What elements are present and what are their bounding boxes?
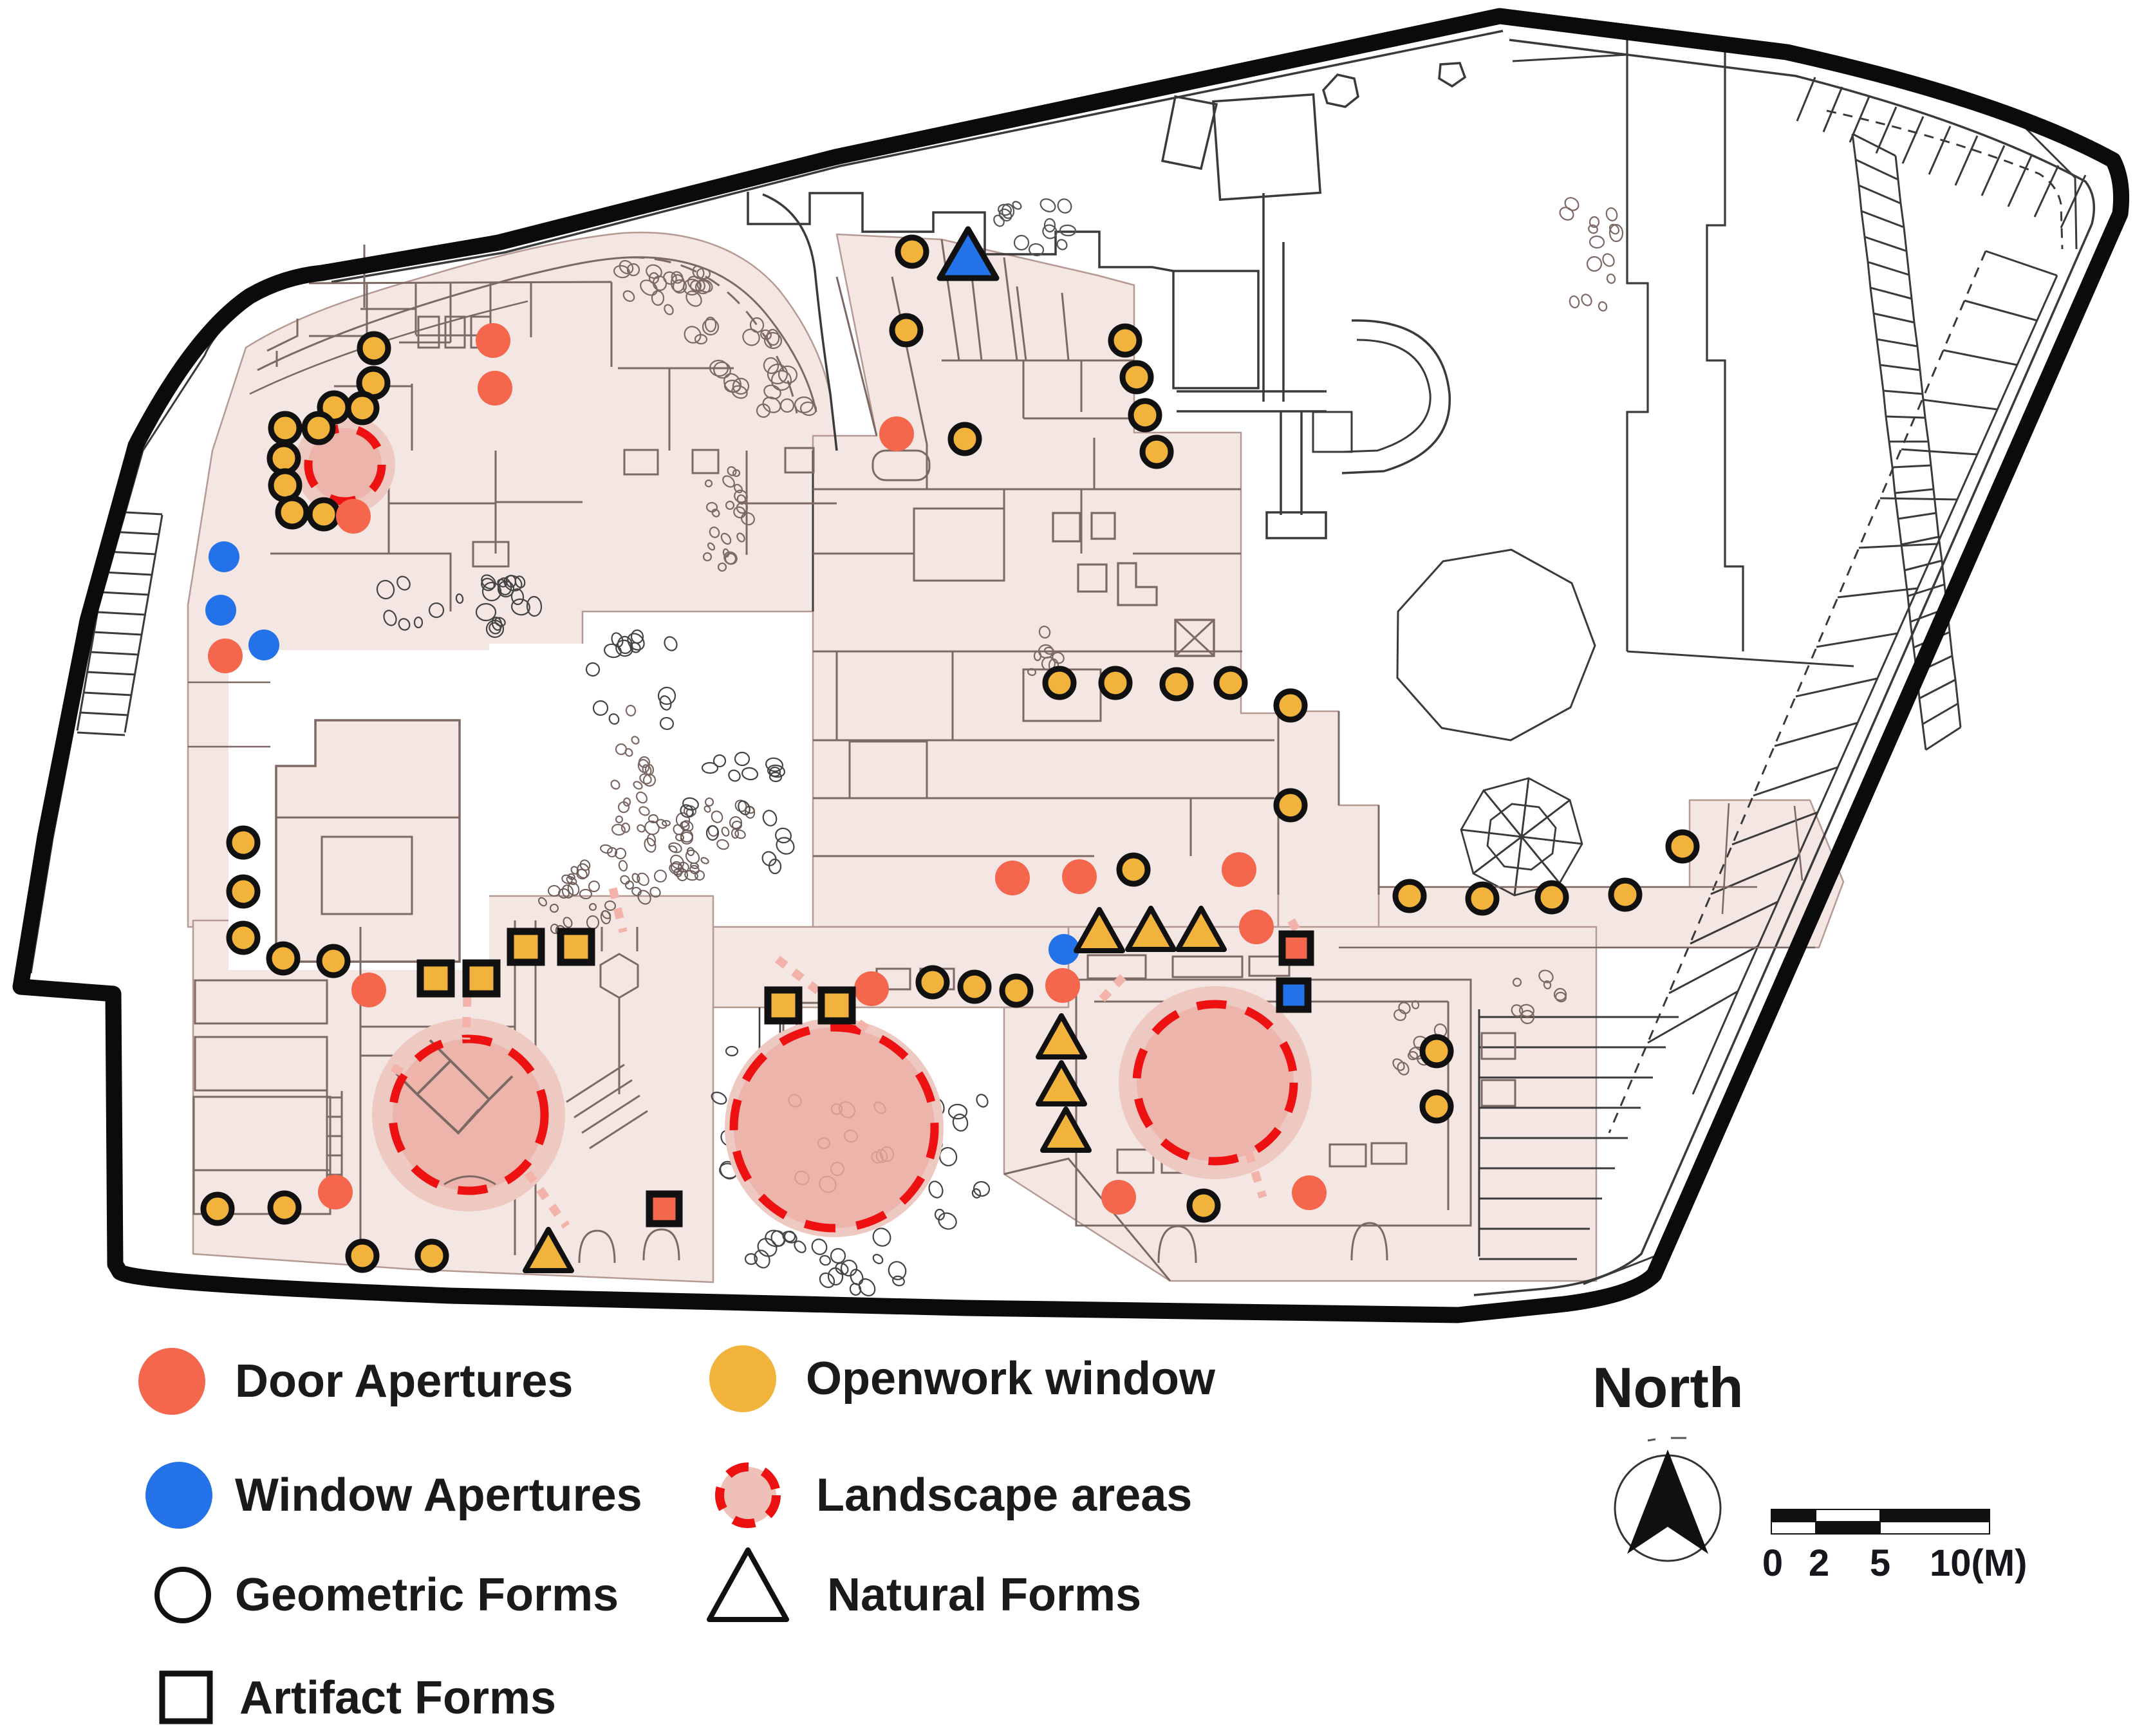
svg-text:10(M): 10(M) [1930, 1542, 2027, 1584]
svg-text:North: North [1592, 1356, 1744, 1419]
svg-text:Landscape areas: Landscape areas [816, 1470, 1192, 1521]
svg-text:2: 2 [1809, 1542, 1829, 1584]
svg-text:Openwork window: Openwork window [806, 1353, 1216, 1405]
svg-text:0: 0 [1762, 1542, 1783, 1584]
svg-text:Window Apertures: Window Apertures [235, 1470, 642, 1521]
svg-text:Artifact Forms: Artifact Forms [239, 1672, 556, 1724]
svg-text:Natural Forms: Natural Forms [827, 1569, 1141, 1621]
svg-text:Door Apertures: Door Apertures [235, 1356, 573, 1407]
svg-text:5: 5 [1870, 1542, 1890, 1584]
svg-text:Geometric Forms: Geometric Forms [235, 1569, 619, 1621]
